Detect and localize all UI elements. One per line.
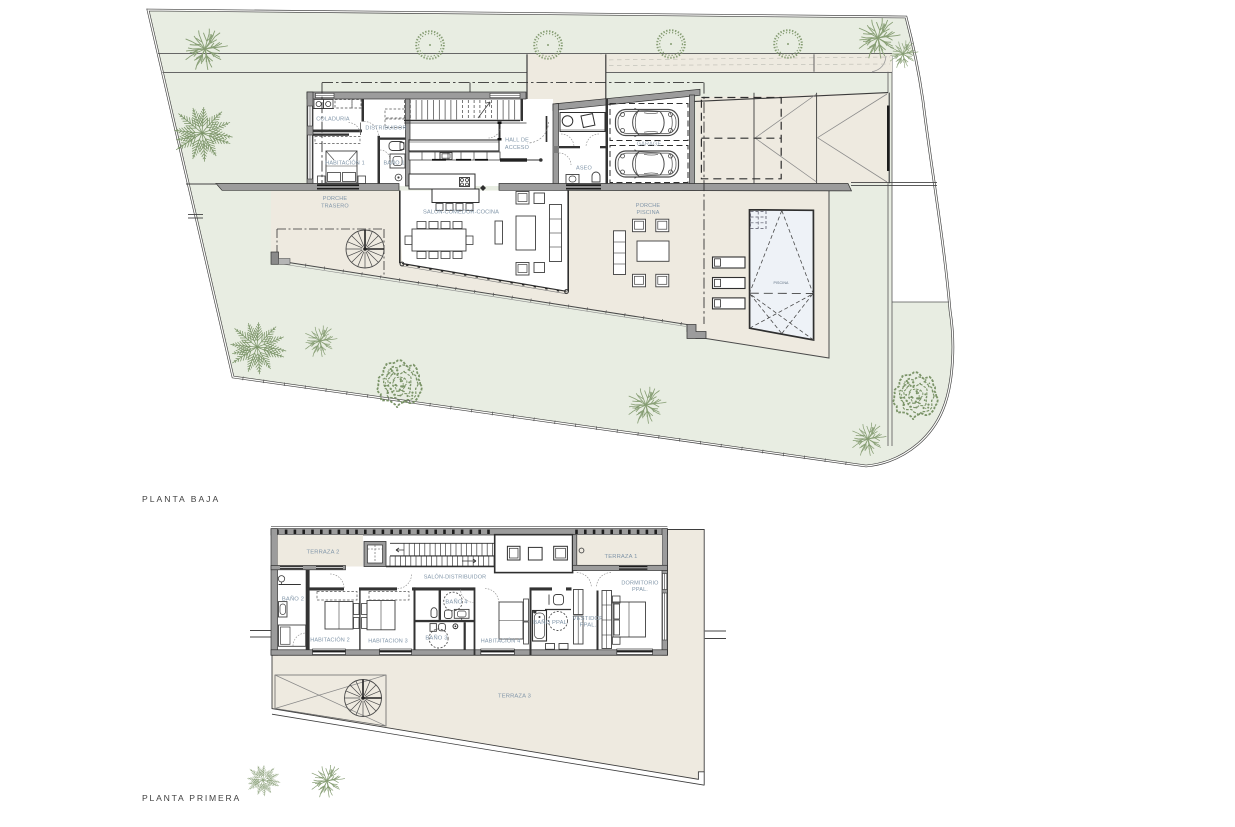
svg-text:DORMITORIO: DORMITORIO [621,581,659,587]
svg-text:PLANTA BAJA: PLANTA BAJA [142,494,220,504]
svg-text:TERRAZA 1: TERRAZA 1 [605,554,638,560]
svg-text:ASEO: ASEO [576,166,592,172]
svg-text:GARAGE: GARAGE [637,142,662,148]
svg-text:HABITACIÓN 4: HABITACIÓN 4 [481,638,521,645]
svg-text:HABITACION 3: HABITACION 3 [368,639,408,645]
svg-text:VESTIDOR: VESTIDOR [573,616,604,622]
svg-text:PISCINA: PISCINA [636,210,659,216]
svg-text:DISTRIBUIDOR: DISTRIBUIDOR [365,126,406,132]
svg-text:HALL DE: HALL DE [505,138,529,144]
svg-text:BAÑO 1: BAÑO 1 [383,160,404,167]
svg-text:BAÑO 2: BAÑO 2 [282,596,304,603]
svg-text:ACCESO: ACCESO [505,145,530,151]
svg-text:PORCHE: PORCHE [636,203,661,209]
svg-text:BAÑO PPAL.: BAÑO PPAL. [533,619,569,626]
svg-text:BAÑO 4: BAÑO 4 [445,599,468,606]
svg-text:SALÓN-COMEDOR-COCINA: SALÓN-COMEDOR-COCINA [423,209,499,216]
svg-text:COLADURIA: COLADURIA [316,117,350,123]
svg-text:PORCHE: PORCHE [323,196,348,202]
svg-text:TRASERO: TRASERO [321,204,349,210]
svg-text:PPAL.: PPAL. [632,587,648,593]
svg-text:HABITACIÓN 2: HABITACIÓN 2 [310,637,350,644]
svg-text:SALÓN-DISTRIBUIDOR: SALÓN-DISTRIBUIDOR [424,574,487,581]
svg-text:PPAL.: PPAL. [580,623,597,629]
svg-text:PISCINA: PISCINA [773,281,789,285]
svg-text:HABITACIÓN 1: HABITACIÓN 1 [325,160,365,167]
svg-text:PLANTA PRIMERA: PLANTA PRIMERA [142,793,241,803]
svg-text:BAÑO 3: BAÑO 3 [425,635,447,642]
svg-text:TERRAZA 3: TERRAZA 3 [498,694,531,700]
svg-text:TERRAZA 2: TERRAZA 2 [307,550,340,556]
